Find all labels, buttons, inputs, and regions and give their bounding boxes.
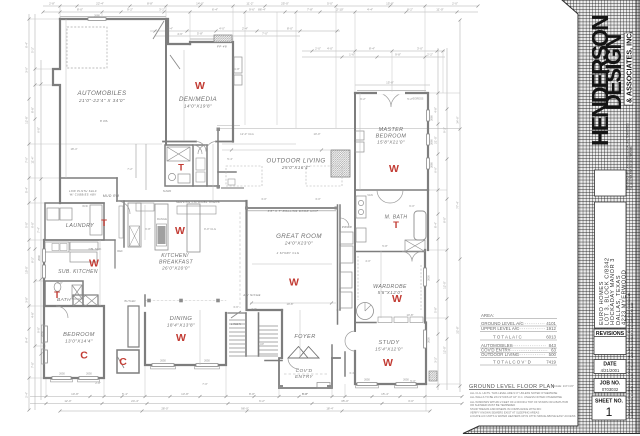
svg-text:T O T A L A / C: T O T A L A / C (493, 335, 522, 340)
svg-text:ALL CLG. HGTS. THIS LEVEL ARE: ALL CLG. HGTS. THIS LEVEL ARE 9'-0" UNLE… (470, 391, 558, 395)
svg-text:ALL WALLS TO BE 2X4 STUDS AT 1: ALL WALLS TO BE 2X4 STUDS AT 16" O.C. UN… (470, 395, 562, 399)
svg-text:14'0"X19'8": 14'0"X19'8" (184, 104, 212, 109)
svg-text:15'-8": 15'-8" (386, 2, 394, 6)
svg-text:GREAT ROOM: GREAT ROOM (276, 233, 322, 240)
svg-text:MASTER: MASTER (379, 127, 404, 133)
svg-text:12'-8": 12'-8" (25, 116, 29, 124)
svg-text:24'0"X23'0": 24'0"X23'0" (284, 241, 313, 246)
svg-text:10'-8": 10'-8" (406, 313, 413, 317)
svg-text:3'-4": 3'-4" (349, 371, 355, 375)
svg-text:5'-8": 5'-8" (197, 32, 203, 36)
svg-text:5'-8": 5'-8" (302, 392, 308, 396)
svg-text:13'-8": 13'-8" (181, 392, 189, 396)
svg-text:T: T (54, 290, 60, 301)
svg-text:4/21/2001: 4/21/2001 (601, 368, 620, 373)
svg-text:ENTRY: ENTRY (295, 374, 313, 380)
svg-text:18'-4": 18'-4" (326, 407, 333, 411)
svg-text:DINING: DINING (170, 316, 193, 322)
svg-text:8'-8": 8'-8" (31, 107, 35, 113)
svg-text:8'-8": 8'-8" (249, 392, 255, 396)
svg-text:9'-6": 9'-6" (249, 8, 255, 12)
svg-text:2650: 2650 (160, 359, 166, 363)
svg-text:2'-0": 2'-0" (452, 2, 458, 6)
svg-text:18'4"X13'8": 18'4"X13'8" (167, 323, 195, 328)
svg-text:24'-4": 24'-4" (131, 399, 139, 403)
svg-text:A/V NICHE: A/V NICHE (242, 293, 261, 297)
svg-text:2'-0": 2'-0" (315, 47, 321, 51)
svg-text:SCALE: 1/4"=1'0": SCALE: 1/4"=1'0" (552, 384, 574, 388)
svg-text:8'-0": 8'-0" (77, 8, 83, 12)
svg-text:LAUNDRY: LAUNDRY (66, 223, 94, 229)
svg-text:4'-0": 4'-0" (219, 27, 225, 31)
svg-text:2680: 2680 (94, 14, 100, 18)
svg-text:5'-2": 5'-2" (31, 47, 35, 53)
svg-text:3'-0": 3'-0" (315, 197, 321, 201)
svg-text:9'-2": 9'-2" (443, 127, 447, 133)
svg-text:8'-4": 8'-4" (369, 47, 375, 51)
svg-text:11'-4": 11'-4" (31, 156, 35, 163)
svg-text:8'-8": 8'-8" (147, 2, 153, 6)
svg-text:2650: 2650 (403, 378, 409, 382)
svg-text:5'-4": 5'-4" (25, 187, 29, 193)
svg-text:LOCATE A/C UNITS & WATER HEATE: LOCATE A/C UNITS & WATER HEATERS UP IN A… (470, 414, 576, 418)
svg-text:UPPER LEVEL A/C: UPPER LEVEL A/C (481, 326, 519, 331)
svg-text:4'-8": 4'-8" (434, 107, 438, 113)
svg-text:6'-8": 6'-8" (145, 227, 151, 231)
svg-text:VERIFY KNOWN SEWERS EXIST AT S: VERIFY KNOWN SEWERS EXIST AT SLEEPING AR… (470, 411, 539, 415)
svg-text:6'-4": 6'-4" (212, 8, 218, 12)
svg-text:7'-4": 7'-4" (37, 227, 41, 233)
svg-text:12'-0": 12'-0" (443, 346, 447, 354)
svg-text:34'-6": 34'-6" (456, 116, 460, 123)
svg-text:LINEN: LINEN (231, 322, 242, 326)
svg-text:PWDR: PWDR (342, 225, 352, 229)
svg-text:8'-4": 8'-4" (434, 222, 438, 228)
svg-text:6'-0": 6'-0" (31, 222, 35, 228)
svg-text:12'-0": 12'-0" (443, 281, 447, 289)
svg-text:6'-6": 6'-6" (434, 167, 438, 173)
svg-text:10'-0": 10'-0" (25, 266, 29, 274)
svg-text:2650: 2650 (204, 359, 210, 363)
svg-text:9'-8": 9'-8" (395, 53, 401, 57)
svg-text:T: T (101, 218, 107, 229)
svg-text:6'-4": 6'-4" (25, 42, 29, 48)
svg-text:3'-8": 3'-8" (25, 297, 29, 303)
svg-text:8'-2": 8'-2" (31, 257, 35, 263)
svg-text:10'-0": 10'-0" (313, 132, 320, 136)
svg-text:5'-0": 5'-0" (25, 222, 29, 228)
svg-text:C: C (80, 350, 88, 362)
svg-text:2650: 2650 (364, 378, 370, 382)
svg-text:W: W (89, 258, 99, 270)
svg-text:W: W (389, 163, 399, 175)
svg-text:2'-4": 2'-4" (25, 392, 29, 398)
svg-text:8'-0": 8'-0" (287, 27, 293, 31)
svg-text:10'-8": 10'-8" (71, 392, 79, 396)
svg-text:W/D: W/D (82, 204, 87, 208)
svg-text:22'-8": 22'-8" (456, 326, 460, 333)
svg-text:MUD RM: MUD RM (103, 194, 119, 198)
svg-text:6'-2": 6'-2" (259, 399, 265, 403)
svg-text:0703032: 0703032 (602, 387, 619, 392)
svg-text:3'-2": 3'-2" (434, 357, 438, 363)
svg-text:2640: 2640 (37, 255, 41, 261)
svg-text:15'8"X21'0": 15'8"X21'0" (377, 140, 405, 145)
svg-text:9'-2": 9'-2" (127, 8, 133, 12)
svg-text:AUTOMOBILES: AUTOMOBILES (77, 90, 127, 97)
svg-text:7'-0": 7'-0" (31, 362, 35, 368)
svg-text:21'-0": 21'-0" (434, 136, 438, 144)
svg-text:2650: 2650 (40, 331, 44, 337)
svg-text:5'-8": 5'-8" (382, 244, 388, 248)
svg-text:35'-0": 35'-0" (341, 399, 349, 403)
svg-text:2650: 2650 (427, 275, 431, 281)
svg-text:2'-8": 2'-8" (49, 2, 55, 6)
svg-text:9'-0" CLG: 9'-0" CLG (204, 227, 216, 231)
svg-text:2650: 2650 (86, 372, 92, 376)
svg-text:7'-0": 7'-0" (202, 382, 208, 386)
svg-text:STUDY: STUDY (379, 340, 401, 346)
svg-text:4'-0": 4'-0" (327, 47, 333, 51)
svg-text:15'-4": 15'-4" (381, 392, 389, 396)
svg-text:25'0"X16'4": 25'0"X16'4" (281, 165, 310, 170)
svg-text:11'-2": 11'-2" (246, 2, 253, 6)
svg-text:EGRESS: EGRESS (413, 97, 424, 101)
svg-text:LOW PLNTH SHLF: LOW PLNTH SHLF (69, 189, 97, 193)
svg-text:W: W (175, 225, 185, 237)
svg-text:SHEET NO.: SHEET NO. (595, 399, 624, 405)
svg-text:18'-4": 18'-4" (70, 147, 77, 151)
svg-text:8'-0": 8'-0" (443, 217, 447, 223)
svg-text:2'-8": 2'-8" (95, 381, 101, 385)
svg-text:SHWR: SHWR (163, 189, 172, 193)
svg-text:5'-4": 5'-4" (227, 157, 233, 161)
svg-text:2'-2": 2'-2" (427, 53, 433, 57)
svg-text:GROUND LEVEL FLOOR PLAN: GROUND LEVEL FLOOR PLAN (469, 384, 555, 390)
svg-text:86'-4": 86'-4" (258, 8, 266, 12)
svg-text:2'-4": 2'-4" (242, 27, 248, 31)
svg-text:2660: 2660 (430, 139, 434, 145)
svg-text:2 STORY CLG: 2 STORY CLG (276, 251, 300, 255)
svg-text:T O T A L C O V ' D: T O T A L C O V ' D (493, 360, 531, 365)
svg-text:6'-2": 6'-2" (360, 97, 366, 101)
svg-text:DESIGN: DESIGN (601, 35, 626, 110)
svg-text:BEDROOM: BEDROOM (63, 332, 95, 338)
svg-text:22'-4": 22'-4" (96, 2, 104, 6)
svg-text:TEL (214) 555-5555 FAX (214): TEL (214) 555-5555 FAX (214) 555-5556 (630, 146, 633, 190)
svg-text:BUTLER: BUTLER (124, 299, 135, 303)
svg-text:28'-0": 28'-0" (161, 407, 168, 411)
svg-text:6'-0": 6'-0" (37, 127, 41, 133)
svg-text:FP 48: FP 48 (217, 45, 227, 49)
svg-text:4'-4": 4'-4" (367, 8, 373, 12)
svg-text:4'-8": 4'-8" (31, 312, 35, 318)
svg-text:7'-2": 7'-2" (127, 167, 133, 171)
svg-text:7'-6": 7'-6" (25, 157, 29, 163)
svg-text:UP: UP (260, 342, 264, 346)
svg-text:9'-4": 9'-4" (25, 337, 29, 343)
svg-text:RANGE: RANGE (157, 217, 167, 221)
svg-text:3'-0": 3'-0" (408, 399, 414, 403)
svg-text:2'-10": 2'-10" (336, 8, 343, 12)
svg-text:W: W (392, 293, 402, 305)
svg-text:8'-2": 8'-2" (407, 8, 413, 12)
svg-text:6013: 6013 (546, 335, 556, 340)
svg-text:7'-8": 7'-8" (307, 8, 313, 12)
svg-text:4223 MYERWOOD: 4223 MYERWOOD (622, 270, 628, 325)
svg-text:C: C (119, 356, 127, 368)
svg-text:VAN: VAN (367, 193, 373, 197)
svg-text:SUB. KITCHEN: SUB. KITCHEN (58, 269, 98, 275)
svg-text:KITCHEN/: KITCHEN/ (161, 253, 189, 259)
svg-text:12'-0" CLG: 12'-0" CLG (240, 132, 254, 136)
svg-text:1: 1 (606, 405, 613, 419)
svg-text:5'-0": 5'-0" (327, 2, 333, 6)
svg-text:1912: 1912 (546, 326, 556, 331)
svg-text:3'-0": 3'-0" (417, 47, 423, 51)
svg-text:OUTDOOR LIVING: OUTDOOR LIVING (266, 158, 325, 165)
svg-text:2'-8": 2'-8" (251, 307, 257, 311)
svg-text:8'8" X 7' ROLLING DOOR UNIT: 8'8" X 7' ROLLING DOOR UNIT (268, 209, 318, 213)
svg-text:4'-6": 4'-6" (177, 32, 183, 36)
svg-text:REPRODUCTION IN WHOLE OR PART: REPRODUCTION IN WHOLE OR PART WITHOUT WR… (630, 302, 634, 418)
svg-text:W: W (176, 332, 186, 344)
svg-text:6'-0": 6'-0" (409, 204, 415, 208)
svg-text:& ASSOCIATES, INC.: & ASSOCIATES, INC. (624, 32, 633, 103)
svg-text:19'-8": 19'-8" (286, 302, 293, 306)
svg-text:8 PA: 8 PA (100, 119, 108, 123)
svg-text:26'0"X20'0": 26'0"X20'0" (161, 266, 190, 271)
svg-text:12'-0": 12'-0" (64, 399, 71, 403)
svg-text:3'-6": 3'-6" (233, 305, 239, 309)
svg-text:11'-0": 11'-0" (436, 8, 443, 12)
svg-text:DATE: DATE (603, 362, 617, 368)
svg-text:FOYER: FOYER (294, 334, 315, 340)
svg-text:7'-0": 7'-0" (262, 32, 268, 36)
svg-text:DBL SINK: DBL SINK (89, 247, 102, 251)
svg-text:9'-0": 9'-0" (57, 281, 63, 285)
svg-text:2660: 2660 (430, 115, 434, 121)
svg-text:13'0"X14'4": 13'0"X14'4" (65, 339, 93, 344)
svg-text:REF: REF (117, 249, 123, 253)
svg-text:DEN/MEDIA: DEN/MEDIA (179, 96, 217, 103)
svg-text:OR SHOWER MUST BE TEMPERED: OR SHOWER MUST BE TEMPERED (470, 403, 515, 407)
svg-text:T: T (178, 163, 184, 174)
svg-text:W: W (383, 357, 393, 369)
svg-text:9'-0": 9'-0" (37, 327, 41, 333)
svg-text:25'-0": 25'-0" (281, 2, 289, 6)
svg-text:3'-0": 3'-0" (261, 197, 267, 201)
svg-text:15'-8": 15'-8" (386, 81, 394, 85)
svg-text:7419: 7419 (546, 360, 556, 365)
svg-text:W/ CUBBIES ABV: W/ CUBBIES ABV (70, 193, 97, 197)
svg-text:REVISIONS: REVISIONS (596, 331, 625, 337)
svg-text:JOB NO.: JOB NO. (600, 381, 621, 387)
svg-text:COV'D: COV'D (296, 368, 313, 374)
svg-text:AREA:: AREA: (481, 313, 494, 318)
svg-text:14'-0": 14'-0" (196, 2, 204, 6)
svg-text:1'-6": 1'-6" (349, 53, 355, 57)
svg-text:5'-0": 5'-0" (410, 379, 416, 383)
svg-text:2650: 2650 (59, 372, 65, 376)
svg-text:SERVING CNTR/DBL OVENS: SERVING CNTR/DBL OVENS (176, 200, 220, 204)
svg-text:W: W (289, 277, 299, 289)
svg-text:W: W (195, 80, 205, 92)
svg-text:1'-8": 1'-8" (234, 67, 240, 71)
svg-text:3'-4": 3'-4" (167, 27, 173, 31)
svg-text:5'-8": 5'-8" (434, 307, 438, 313)
svg-text:77'-4": 77'-4" (456, 201, 460, 209)
svg-text:STAIR TREADS AND RISERS IN COM: STAIR TREADS AND RISERS IN COMPLIANCE WI… (470, 407, 541, 411)
svg-text:4'-0": 4'-0" (365, 259, 371, 263)
svg-text:3'-2": 3'-2" (159, 8, 165, 12)
svg-text:3'-6": 3'-6" (25, 67, 29, 73)
svg-text:2660: 2660 (430, 162, 434, 168)
svg-text:2650: 2650 (427, 337, 431, 343)
svg-text:15'4"X12'0": 15'4"X12'0" (375, 347, 403, 352)
svg-text:21'0"-22'4" X 34'0": 21'0"-22'4" X 34'0" (78, 98, 125, 103)
svg-text:T: T (393, 220, 399, 231)
